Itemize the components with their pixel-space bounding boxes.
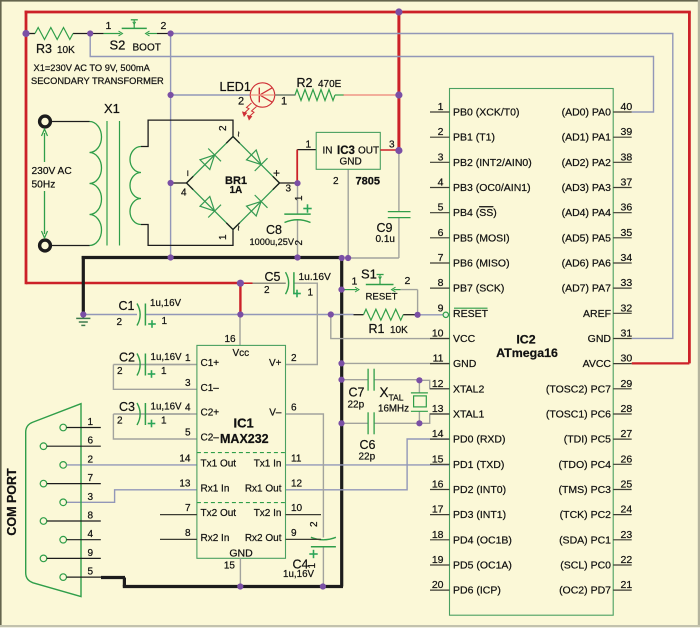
svg-text:19: 19 <box>432 554 444 566</box>
svg-text:2: 2 <box>117 317 123 328</box>
svg-text:(AD3) PA3: (AD3) PA3 <box>562 182 612 194</box>
svg-text:2: 2 <box>87 454 93 465</box>
svg-text:34: 34 <box>621 252 633 264</box>
svg-text:S1: S1 <box>361 267 377 282</box>
svg-text:16: 16 <box>225 334 237 345</box>
svg-text:SECONDARY TRANSFORMER: SECONDARY TRANSFORMER <box>31 76 164 86</box>
svg-text:1: 1 <box>352 276 358 288</box>
svg-text:7: 7 <box>87 473 93 484</box>
svg-text:XTAL2: XTAL2 <box>453 383 484 395</box>
svg-text:(TMS) PC3: (TMS) PC3 <box>559 484 612 496</box>
svg-text:24: 24 <box>621 504 633 516</box>
svg-text:C2+: C2+ <box>201 408 220 419</box>
svg-text:20: 20 <box>432 579 444 591</box>
svg-text:X1: X1 <box>104 101 120 116</box>
svg-text:(SDA) PC1: (SDA) PC1 <box>559 534 611 546</box>
svg-text:LED1: LED1 <box>220 80 251 94</box>
svg-text:PD5 (OC1A): PD5 (OC1A) <box>453 560 512 572</box>
svg-text:C3: C3 <box>119 400 135 414</box>
svg-text:PB2 (INT2/AIN0): PB2 (INT2/AIN0) <box>453 157 532 169</box>
svg-text:31: 31 <box>621 328 633 340</box>
svg-text:GND: GND <box>229 548 253 560</box>
svg-text:17: 17 <box>432 504 444 516</box>
svg-text:10: 10 <box>432 328 444 340</box>
svg-text:GND: GND <box>340 157 362 168</box>
svg-text:(TDI) PC5: (TDI) PC5 <box>564 434 611 446</box>
svg-text:30: 30 <box>621 353 633 365</box>
svg-text:230V AC: 230V AC <box>32 166 72 177</box>
svg-text:5: 5 <box>438 202 444 214</box>
svg-text:2: 2 <box>264 285 270 296</box>
svg-text:1: 1 <box>87 417 93 428</box>
svg-text:6: 6 <box>87 436 93 447</box>
svg-text:(AD6) PA6: (AD6) PA6 <box>562 258 612 270</box>
svg-text:(OC2) PD7: (OC2) PD7 <box>559 585 611 597</box>
svg-text:X: X <box>380 385 389 400</box>
svg-text:1: 1 <box>308 288 314 299</box>
svg-text:1u,16V: 1u,16V <box>150 298 182 309</box>
svg-text:2: 2 <box>117 366 123 377</box>
svg-text:1: 1 <box>306 140 312 151</box>
svg-text:22p: 22p <box>359 452 376 463</box>
svg-text:PB5 (MOSI): PB5 (MOSI) <box>453 232 510 244</box>
svg-text:1: 1 <box>307 563 318 569</box>
svg-text:PB4 (SS): PB4 (SS) <box>453 207 497 219</box>
svg-text:3: 3 <box>87 492 93 503</box>
svg-text:~: ~ <box>234 131 245 137</box>
svg-text:8: 8 <box>438 277 444 289</box>
svg-text:R3: R3 <box>36 42 52 56</box>
svg-text:50Hz: 50Hz <box>32 180 56 191</box>
svg-text:21: 21 <box>621 579 633 591</box>
svg-text:~: ~ <box>234 225 245 231</box>
svg-text:4: 4 <box>185 403 191 414</box>
svg-text:36: 36 <box>621 202 633 214</box>
svg-text:4: 4 <box>181 188 187 199</box>
svg-text:Tx1 Out: Tx1 Out <box>201 458 237 469</box>
svg-text:1000u,25V: 1000u,25V <box>250 237 295 247</box>
svg-text:IN: IN <box>323 146 333 157</box>
svg-text:33: 33 <box>621 277 633 289</box>
svg-text:PB3 (OC0/AIN1): PB3 (OC0/AIN1) <box>453 182 531 194</box>
svg-text:16MHz: 16MHz <box>378 404 409 415</box>
svg-text:VCC: VCC <box>453 333 476 345</box>
svg-text:(AD0) PA0: (AD0) PA0 <box>562 107 612 119</box>
svg-text:6: 6 <box>291 403 297 414</box>
svg-text:R2: R2 <box>297 76 313 90</box>
svg-text:29: 29 <box>621 378 633 390</box>
svg-text:3: 3 <box>185 378 191 389</box>
svg-text:Vcc: Vcc <box>233 348 250 359</box>
svg-text:25: 25 <box>621 479 633 491</box>
svg-text:1: 1 <box>106 20 112 32</box>
svg-text:(AD5) PA5: (AD5) PA5 <box>562 232 612 244</box>
svg-text:35: 35 <box>621 227 633 239</box>
svg-text:22: 22 <box>621 554 633 566</box>
svg-text:7805: 7805 <box>356 176 380 188</box>
svg-text:PD4 (OC1B): PD4 (OC1B) <box>453 534 512 546</box>
svg-text:GND: GND <box>453 358 477 370</box>
svg-text:TAL: TAL <box>389 393 404 403</box>
svg-text:C5: C5 <box>265 270 281 284</box>
svg-text:1: 1 <box>218 234 229 240</box>
svg-text:(TOSC1) PC6: (TOSC1) PC6 <box>546 409 611 421</box>
svg-text:C8: C8 <box>266 223 282 237</box>
svg-text:22p: 22p <box>348 400 365 411</box>
svg-text:V+: V+ <box>269 358 282 369</box>
svg-text:(TCK) PC2: (TCK) PC2 <box>560 509 611 521</box>
svg-text:IC1: IC1 <box>234 416 254 431</box>
svg-text:16: 16 <box>432 479 444 491</box>
svg-text:14: 14 <box>179 453 191 464</box>
svg-text:Rx1 In: Rx1 In <box>201 483 230 494</box>
svg-text:5: 5 <box>87 567 93 578</box>
svg-text:RESET: RESET <box>366 292 398 303</box>
svg-text:(TOSC2) PC7: (TOSC2) PC7 <box>546 383 611 395</box>
svg-text:V–: V– <box>269 408 282 419</box>
svg-text:S2: S2 <box>110 38 126 53</box>
svg-text:2: 2 <box>309 521 320 527</box>
svg-text:AREF: AREF <box>583 308 611 320</box>
svg-text:2: 2 <box>294 240 305 246</box>
svg-text:18: 18 <box>432 529 444 541</box>
svg-text:IC2: IC2 <box>516 333 535 347</box>
svg-text:2: 2 <box>438 126 444 138</box>
svg-text:1: 1 <box>162 316 168 327</box>
svg-text:13: 13 <box>179 478 191 489</box>
svg-text:37: 37 <box>621 177 633 189</box>
svg-text:4: 4 <box>438 177 444 189</box>
svg-text:OUT: OUT <box>358 146 379 157</box>
svg-text:7: 7 <box>438 252 444 264</box>
svg-text:PB7 (SCK): PB7 (SCK) <box>453 283 504 295</box>
svg-text:3: 3 <box>438 151 444 163</box>
svg-text:C2–: C2– <box>201 433 220 444</box>
svg-text:(SCL) PC0: (SCL) PC0 <box>560 560 611 572</box>
svg-text:2: 2 <box>161 20 167 32</box>
svg-text:PD6 (ICP): PD6 (ICP) <box>453 585 501 597</box>
svg-text:11: 11 <box>433 353 444 365</box>
svg-text:Rx1 Out: Rx1 Out <box>245 483 282 494</box>
svg-text:12: 12 <box>432 378 444 390</box>
svg-text:9: 9 <box>291 528 297 539</box>
svg-text:2: 2 <box>405 275 411 287</box>
svg-text:Tx2 In: Tx2 In <box>254 508 282 519</box>
svg-text:10: 10 <box>291 503 303 514</box>
svg-text:IC3: IC3 <box>337 145 355 157</box>
svg-text:XTAL1: XTAL1 <box>453 409 484 421</box>
svg-text:1u,16V: 1u,16V <box>151 402 183 413</box>
svg-text:2: 2 <box>238 96 244 108</box>
svg-text:27: 27 <box>621 428 633 440</box>
svg-text:1u,16V: 1u,16V <box>151 352 183 363</box>
svg-text:5: 5 <box>185 428 191 439</box>
svg-text:(AD4) PA4: (AD4) PA4 <box>562 207 612 219</box>
svg-text:C1: C1 <box>119 299 135 313</box>
svg-text:13: 13 <box>432 403 444 415</box>
svg-text:PB1 (T1): PB1 (T1) <box>453 132 495 144</box>
svg-text:8: 8 <box>87 511 93 522</box>
svg-text:8: 8 <box>185 528 191 539</box>
svg-text:–: – <box>183 170 194 176</box>
svg-text:2: 2 <box>291 353 297 364</box>
svg-text:RESET: RESET <box>453 308 489 320</box>
svg-text:23: 23 <box>621 529 633 541</box>
svg-text:1: 1 <box>161 366 167 377</box>
svg-text:28: 28 <box>621 403 633 415</box>
svg-text:BOOT: BOOT <box>133 43 161 54</box>
svg-text:6: 6 <box>438 227 444 239</box>
svg-text:11: 11 <box>291 453 302 464</box>
svg-text:3: 3 <box>286 184 292 195</box>
svg-text:2: 2 <box>117 416 123 427</box>
svg-text:10K: 10K <box>57 45 75 56</box>
svg-text:2: 2 <box>218 125 229 131</box>
svg-text:7: 7 <box>185 503 191 514</box>
svg-text:1: 1 <box>294 195 305 201</box>
svg-text:+: + <box>273 166 280 180</box>
svg-text:38: 38 <box>621 151 633 163</box>
svg-text:C2: C2 <box>119 351 135 365</box>
svg-text:C9: C9 <box>377 221 393 235</box>
svg-text:Tx1 In: Tx1 In <box>254 458 282 469</box>
svg-text:9: 9 <box>87 548 93 559</box>
svg-text:(AD7) PA7: (AD7) PA7 <box>562 283 612 295</box>
svg-text:C7: C7 <box>349 386 365 400</box>
svg-text:1u,16V: 1u,16V <box>283 569 315 580</box>
svg-text:32: 32 <box>621 302 633 314</box>
svg-text:PD3 (INT1): PD3 (INT1) <box>453 509 506 521</box>
svg-text:Rx2 Out: Rx2 Out <box>245 533 282 544</box>
svg-text:Rx2 In: Rx2 In <box>201 533 230 544</box>
svg-text:PD2 (INT0): PD2 (INT0) <box>453 484 506 496</box>
svg-text:1: 1 <box>185 353 191 364</box>
svg-text:1A: 1A <box>230 185 243 196</box>
svg-text:4: 4 <box>87 529 93 540</box>
svg-text:10K: 10K <box>390 325 408 336</box>
svg-text:AVCC: AVCC <box>583 358 612 370</box>
svg-text:3: 3 <box>389 140 395 151</box>
svg-text:14: 14 <box>432 428 444 440</box>
svg-text:C1–: C1– <box>201 383 220 394</box>
svg-text:470E: 470E <box>318 79 342 90</box>
svg-text:COM PORT: COM PORT <box>5 468 19 536</box>
svg-text:PD0 (RXD): PD0 (RXD) <box>453 434 506 446</box>
svg-text:1: 1 <box>161 416 167 427</box>
svg-text:12: 12 <box>291 478 303 489</box>
svg-text:15: 15 <box>432 453 444 465</box>
svg-text:C6: C6 <box>360 438 376 452</box>
svg-text:X1=230V AC TO 9V, 500mA: X1=230V AC TO 9V, 500mA <box>34 63 151 73</box>
svg-text:GND: GND <box>588 333 612 345</box>
svg-text:PB0 (XCK/T0): PB0 (XCK/T0) <box>453 107 520 119</box>
svg-text:40: 40 <box>621 101 633 113</box>
svg-text:26: 26 <box>621 453 633 465</box>
svg-text:2: 2 <box>333 176 339 187</box>
svg-text:(AD2) PA2: (AD2) PA2 <box>562 157 612 169</box>
svg-text:C1+: C1+ <box>201 358 220 369</box>
svg-text:1: 1 <box>281 96 287 108</box>
svg-text:(AD1) PA1: (AD1) PA1 <box>562 132 612 144</box>
svg-text:PB6 (MISO): PB6 (MISO) <box>453 258 510 270</box>
svg-text:0.1u: 0.1u <box>376 234 395 245</box>
svg-text:1u.16V: 1u.16V <box>299 272 331 283</box>
svg-text:39: 39 <box>621 126 633 138</box>
svg-text:R1: R1 <box>369 322 385 336</box>
svg-text:PD1 (TXD): PD1 (TXD) <box>453 459 504 471</box>
svg-text:Tx2 Out: Tx2 Out <box>201 508 237 519</box>
svg-text:MAX232: MAX232 <box>220 432 269 446</box>
svg-text:15: 15 <box>224 561 236 572</box>
svg-text:ATmega16: ATmega16 <box>496 346 558 360</box>
svg-text:(TDO) PC4: (TDO) PC4 <box>559 459 612 471</box>
svg-text:1: 1 <box>438 101 444 113</box>
svg-text:9: 9 <box>438 302 444 314</box>
